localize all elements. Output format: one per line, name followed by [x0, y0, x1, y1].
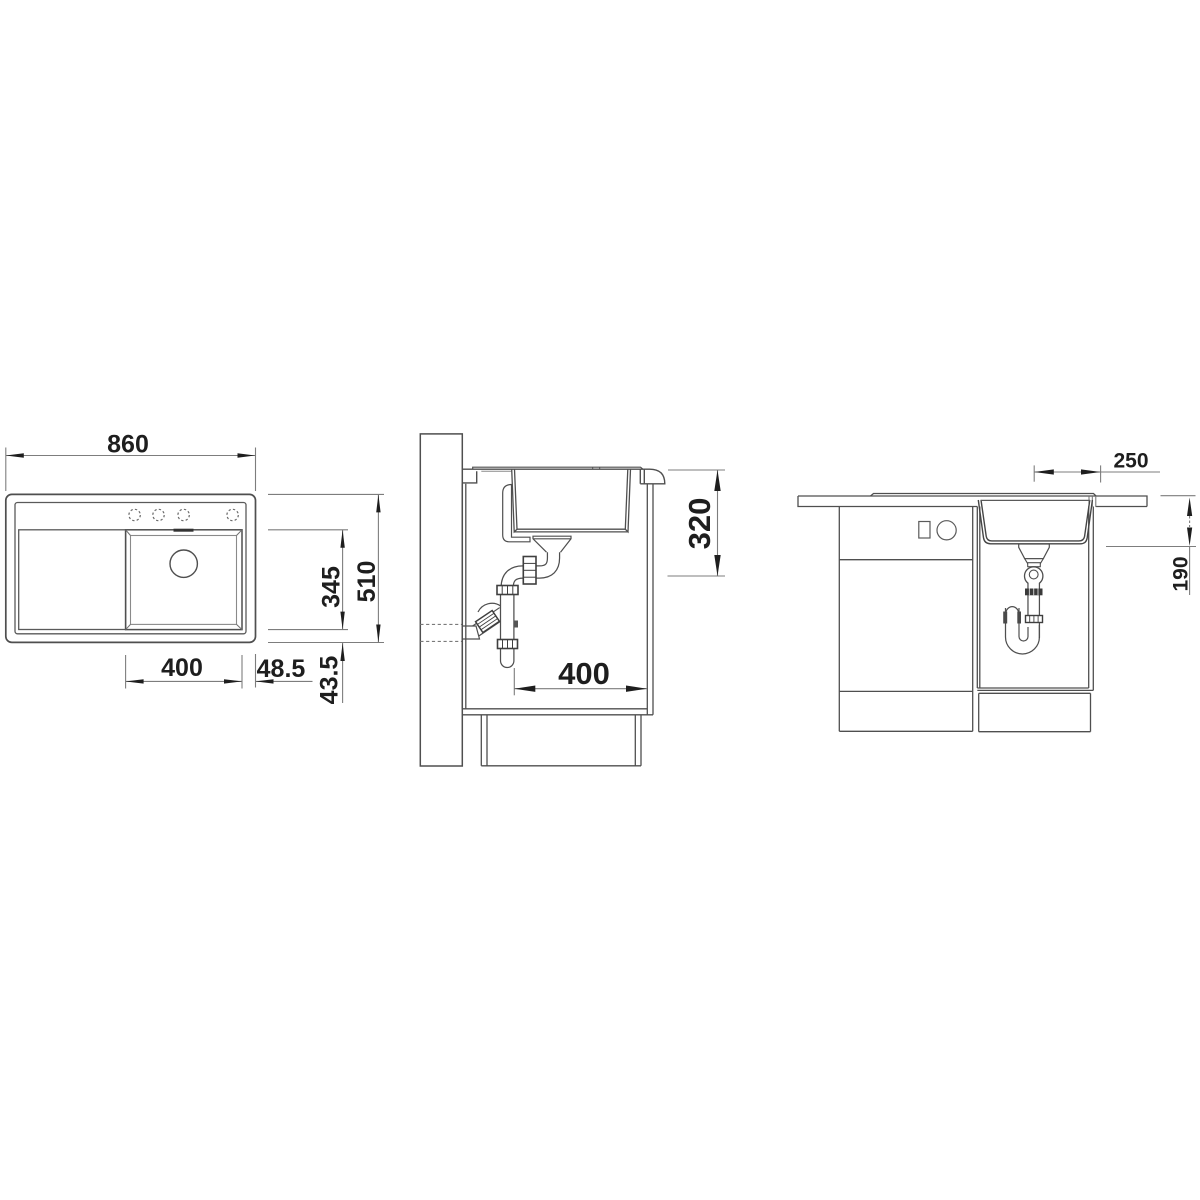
svg-text:48.5: 48.5	[257, 655, 306, 683]
svg-text:43.5: 43.5	[316, 656, 344, 705]
svg-text:320: 320	[682, 498, 717, 550]
svg-text:510: 510	[353, 561, 381, 603]
svg-text:400: 400	[558, 656, 610, 691]
svg-text:860: 860	[107, 430, 149, 458]
svg-text:345: 345	[317, 566, 345, 608]
svg-text:190: 190	[1169, 556, 1192, 591]
svg-text:250: 250	[1113, 450, 1148, 473]
svg-text:400: 400	[161, 654, 203, 682]
